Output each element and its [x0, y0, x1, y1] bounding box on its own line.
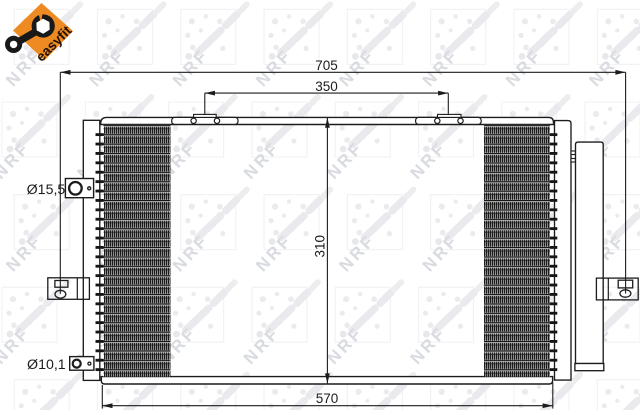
svg-text:Ø10,1: Ø10,1	[27, 357, 66, 373]
svg-text:310: 310	[312, 235, 327, 258]
svg-text:570: 570	[316, 391, 339, 406]
svg-text:Ø15,5: Ø15,5	[27, 182, 66, 198]
svg-text:705: 705	[315, 58, 338, 73]
svg-text:350: 350	[315, 79, 338, 94]
